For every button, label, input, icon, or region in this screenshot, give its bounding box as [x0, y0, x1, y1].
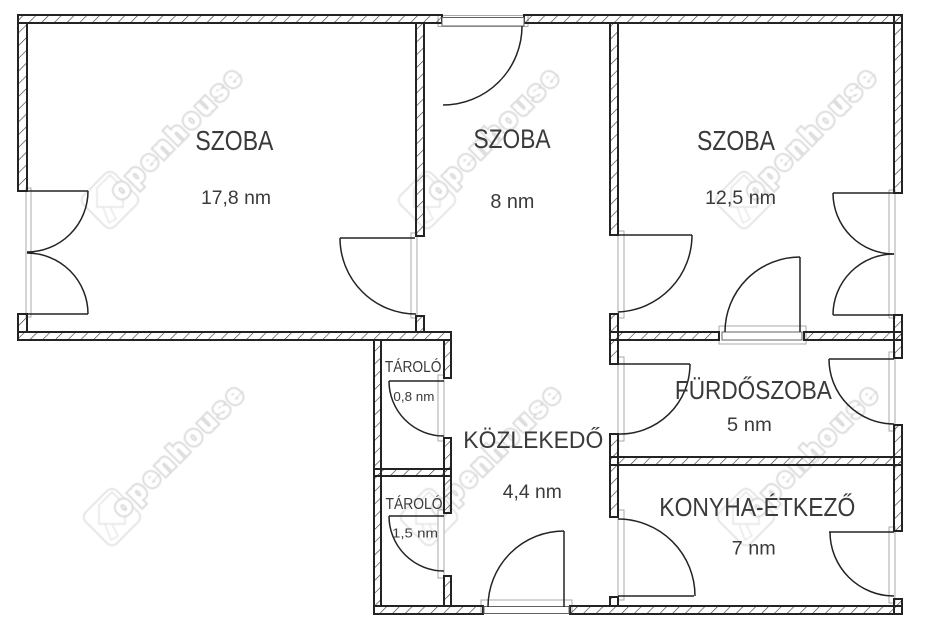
svg-text:TÁROLÓ: TÁROLÓ — [385, 357, 442, 376]
svg-text:7 nm: 7 nm — [732, 538, 776, 560]
svg-text:12,5 nm: 12,5 nm — [705, 187, 776, 209]
svg-text:17,8 nm: 17,8 nm — [201, 187, 271, 209]
svg-text:1,5 nm: 1,5 nm — [392, 526, 438, 541]
svg-text:TÁROLÓ: TÁROLÓ — [386, 494, 443, 513]
svg-text:4,4 nm: 4,4 nm — [503, 481, 562, 503]
svg-text:SZOBA: SZOBA — [195, 125, 273, 156]
svg-text:KÖZLEKEDŐ: KÖZLEKEDŐ — [463, 427, 603, 454]
svg-text:SZOBA: SZOBA — [474, 124, 551, 154]
svg-text:KONYHA-ÉTKEZŐ: KONYHA-ÉTKEZŐ — [659, 492, 855, 522]
svg-text:0,8 nm: 0,8 nm — [393, 389, 434, 404]
svg-text:FÜRDŐSZOBA: FÜRDŐSZOBA — [675, 375, 833, 405]
svg-text:SZOBA: SZOBA — [697, 125, 775, 156]
svg-text:5 nm: 5 nm — [727, 414, 772, 436]
svg-text:8 nm: 8 nm — [490, 190, 534, 213]
